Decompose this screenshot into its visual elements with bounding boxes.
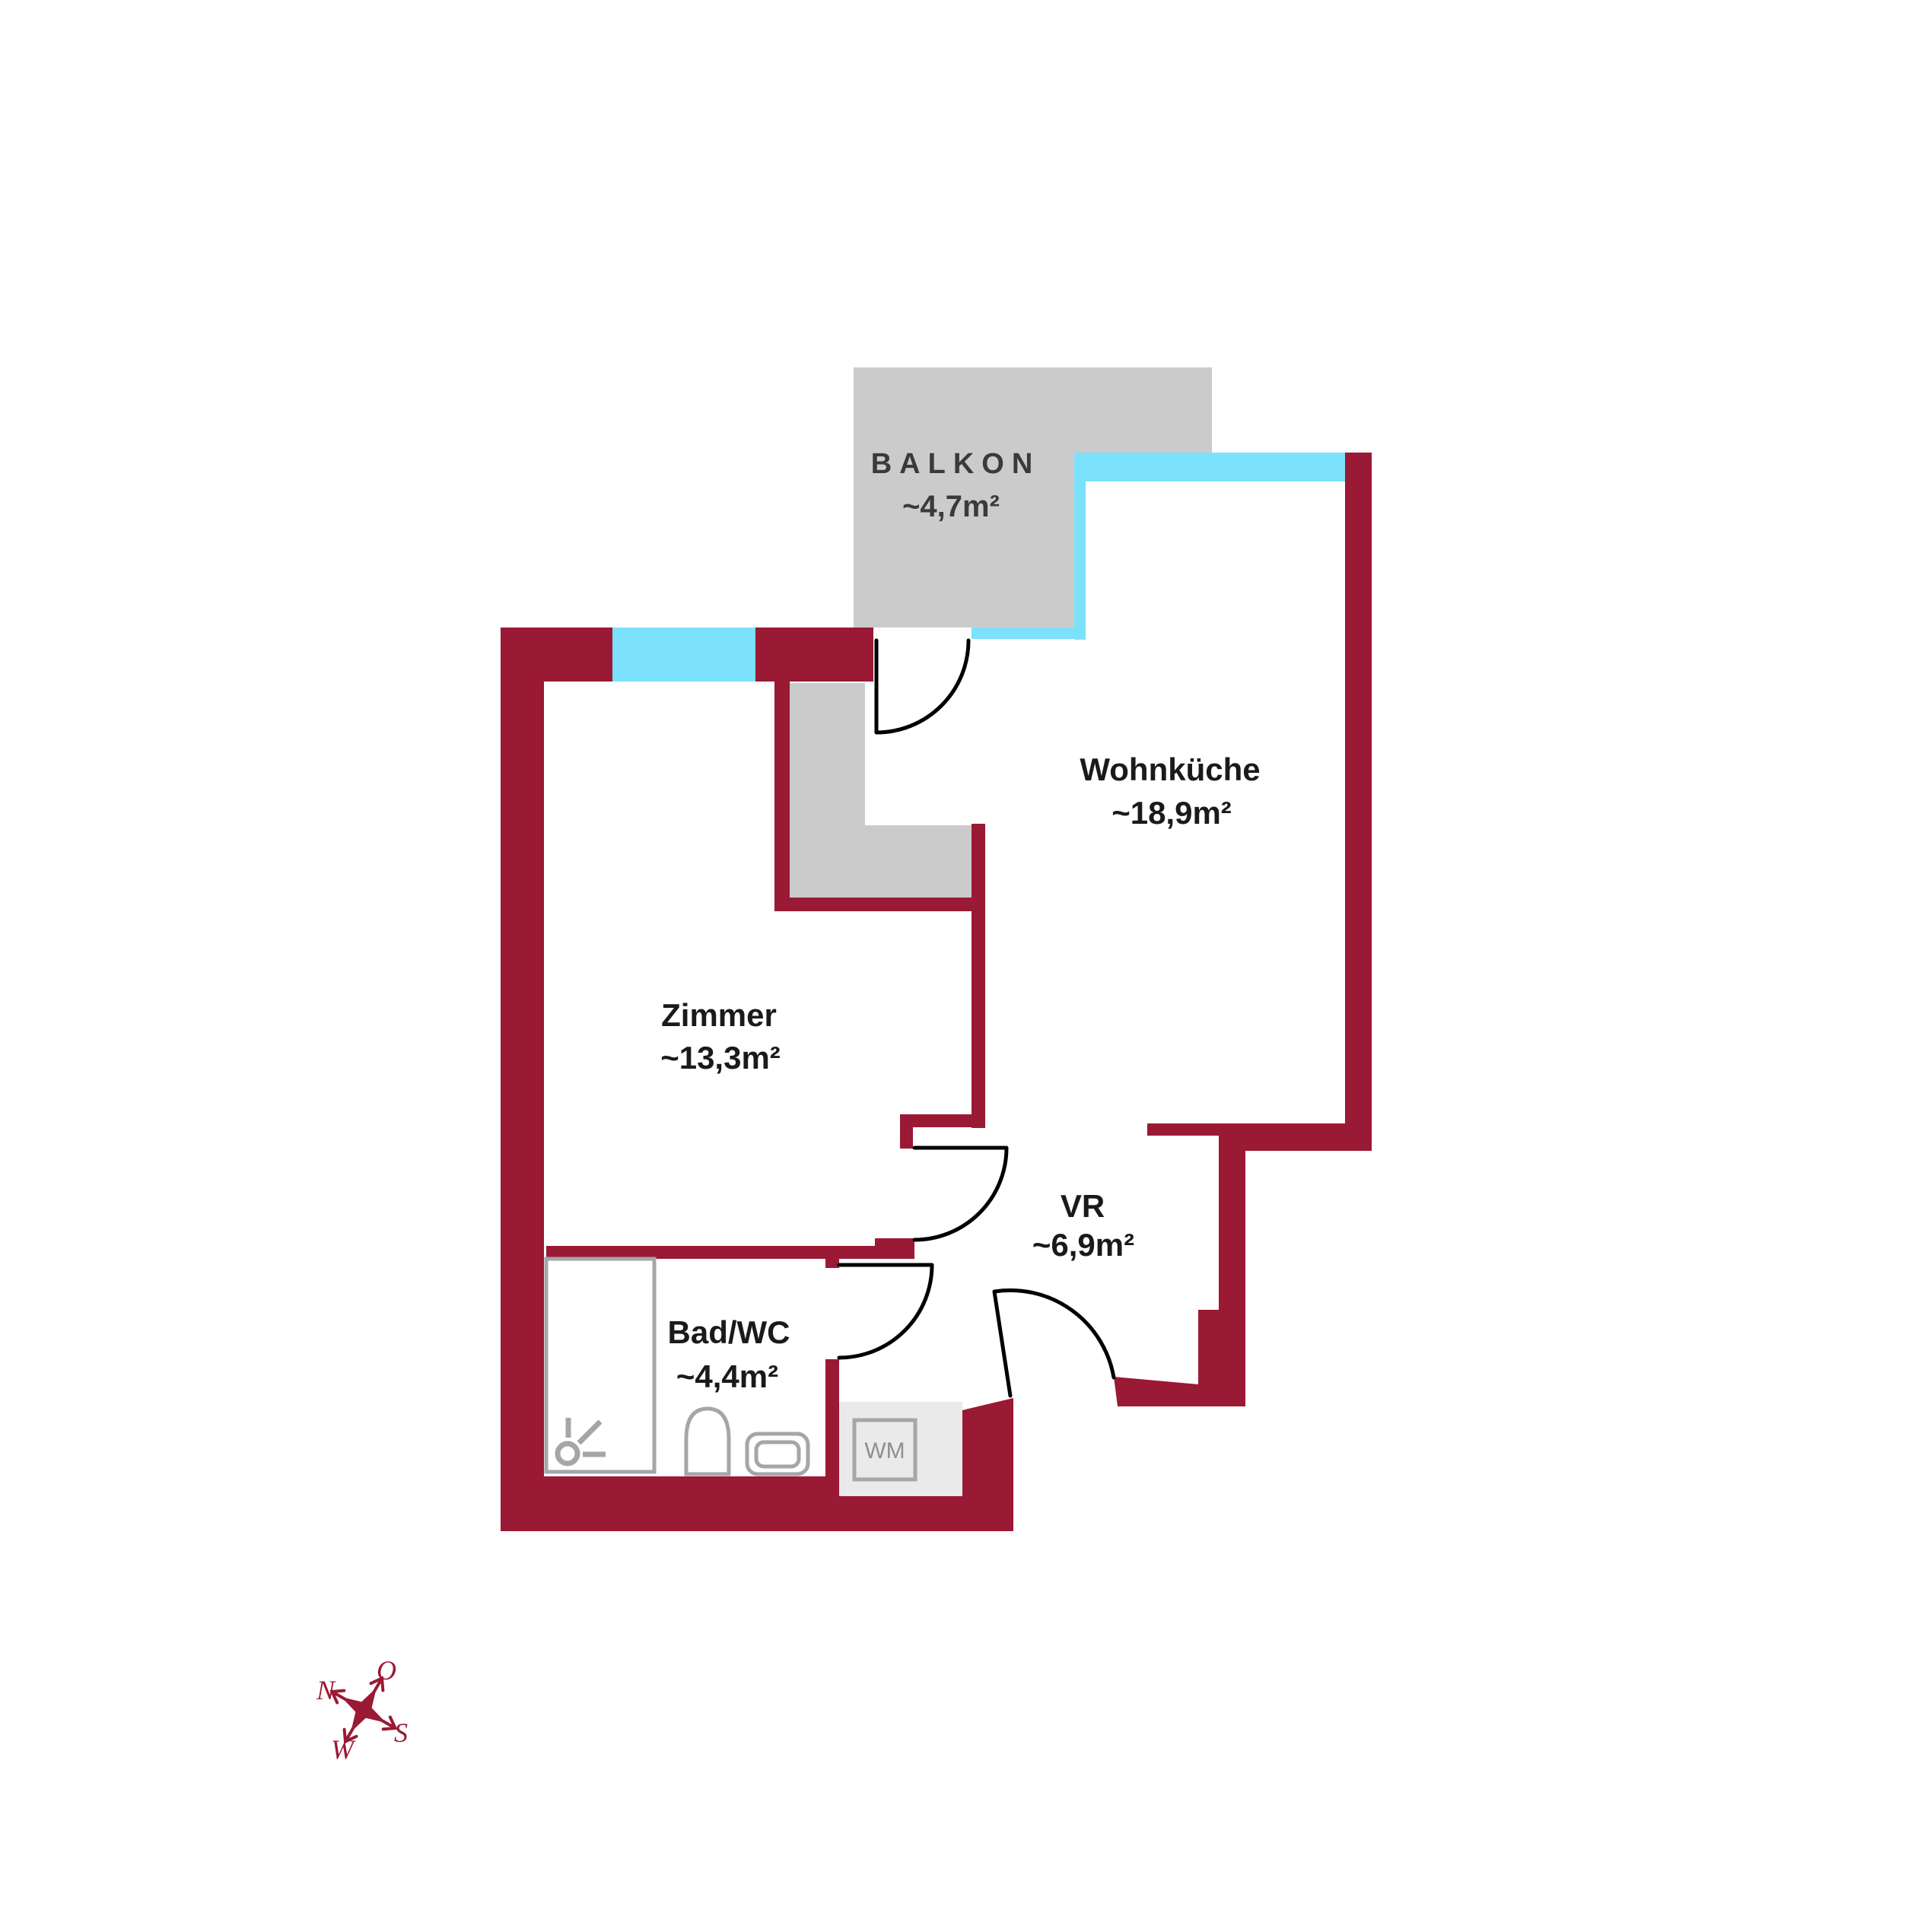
zimmer-area: ~13,3m²	[660, 1040, 781, 1076]
compass-letter-west: W	[331, 1734, 356, 1765]
sink-icon	[747, 1434, 808, 1474]
balcony-area: ~4,7m²	[902, 490, 1000, 523]
balcony-name: BALKON	[871, 448, 1041, 480]
vr-name: VR	[1061, 1188, 1105, 1224]
compass-letter-east: O	[377, 1655, 396, 1686]
kitchen-unit-shape	[790, 683, 972, 898]
zimmer-door	[914, 1148, 1007, 1240]
entrance-door	[994, 1290, 1114, 1396]
top-wall-right	[755, 628, 873, 682]
bad-door	[839, 1265, 932, 1358]
kitchen-unit	[790, 683, 972, 898]
compass-letter-north: N	[316, 1675, 336, 1705]
compass-star	[342, 1688, 386, 1733]
floor-plan-page: WM BALKON ~4,7m² Wohnküche ~18,9m² Zimme…	[0, 0, 1924, 1932]
balcony-window-strip	[972, 628, 1086, 639]
left-wall	[501, 628, 544, 1531]
bad-name: Bad/WC	[668, 1314, 790, 1350]
kitchen-left-wall	[774, 682, 790, 911]
wohnkueche-side-window	[1074, 453, 1086, 640]
bad-right-wall	[825, 1359, 839, 1498]
entrance-side-wall	[962, 1398, 1013, 1531]
zimmer-window	[612, 628, 755, 682]
sink-inner	[756, 1442, 799, 1466]
wohnkueche-bottom-stub	[1147, 1123, 1219, 1136]
vr-top-wall-nub	[900, 1127, 913, 1149]
wohnkueche-top-window	[1074, 453, 1345, 481]
wohnkueche-area: ~18,9m²	[1111, 795, 1232, 831]
shower-head-icon	[558, 1418, 606, 1463]
vr-right-wall-lower	[1198, 1310, 1245, 1406]
wohnkueche-right-wall	[1345, 453, 1372, 1151]
wohnkueche-name: Wohnküche	[1080, 752, 1260, 787]
room-divider-wall	[972, 824, 985, 1128]
bottom-wall	[501, 1476, 825, 1531]
balcony-door	[876, 640, 968, 732]
vr-area: ~6,9m²	[1032, 1227, 1134, 1263]
kitchen-bottom-wall	[774, 898, 985, 911]
bad-area: ~4,4m²	[676, 1358, 778, 1394]
bad-wall-nub	[825, 1259, 839, 1268]
vr-top-wall	[900, 1114, 972, 1127]
bad-top-wall-cap	[875, 1238, 914, 1259]
floor-plan-drawing: WM BALKON ~4,7m² Wohnküche ~18,9m² Zimme…	[0, 0, 1924, 1932]
toilet-icon	[686, 1409, 729, 1474]
bad-top-wall	[546, 1246, 914, 1259]
compass-letter-south: S	[394, 1718, 408, 1748]
washing-machine-label: WM	[864, 1438, 905, 1463]
shower-tray	[546, 1259, 654, 1472]
shower-head-circle	[558, 1444, 577, 1463]
entrance-slanted-wall	[1114, 1377, 1198, 1406]
shower-head-line-diagonal	[579, 1422, 600, 1443]
vr-right-wall-upper	[1219, 1123, 1245, 1311]
zimmer-name: Zimmer	[661, 997, 777, 1033]
compass-rose: N O S W	[316, 1655, 408, 1765]
